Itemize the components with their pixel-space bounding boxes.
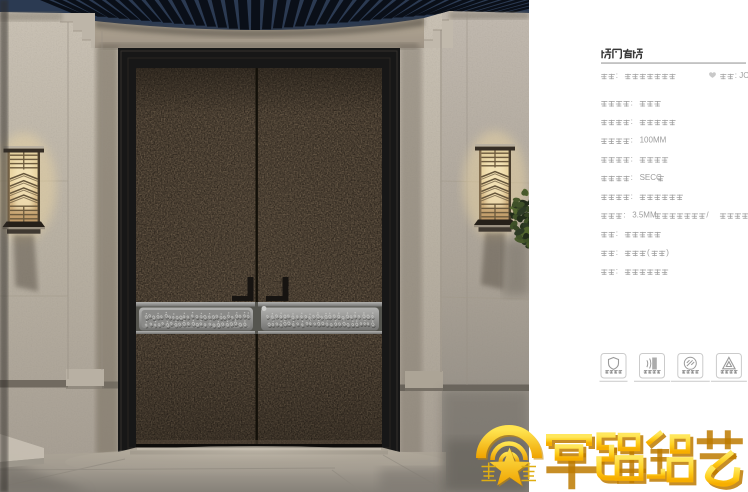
- svg-text::: :: [631, 136, 633, 145]
- svg-text::: :: [631, 154, 633, 163]
- svg-text:3.5MM: 3.5MM: [632, 211, 657, 220]
- svg-text::: :: [623, 211, 625, 220]
- svg-text:: JC: : JC: [735, 71, 748, 80]
- svg-text::: :: [616, 229, 618, 238]
- svg-text:(: (: [647, 248, 650, 257]
- svg-text::: :: [631, 173, 633, 182]
- svg-text::: :: [616, 71, 618, 80]
- svg-text:): ): [666, 248, 669, 257]
- svg-text::: :: [631, 117, 633, 126]
- svg-text::: :: [631, 98, 633, 107]
- svg-text::: :: [616, 248, 618, 257]
- svg-text:100MM: 100MM: [640, 136, 667, 145]
- svg-text::: :: [631, 192, 633, 201]
- svg-text:/: /: [706, 211, 709, 220]
- svg-text::: :: [616, 267, 618, 276]
